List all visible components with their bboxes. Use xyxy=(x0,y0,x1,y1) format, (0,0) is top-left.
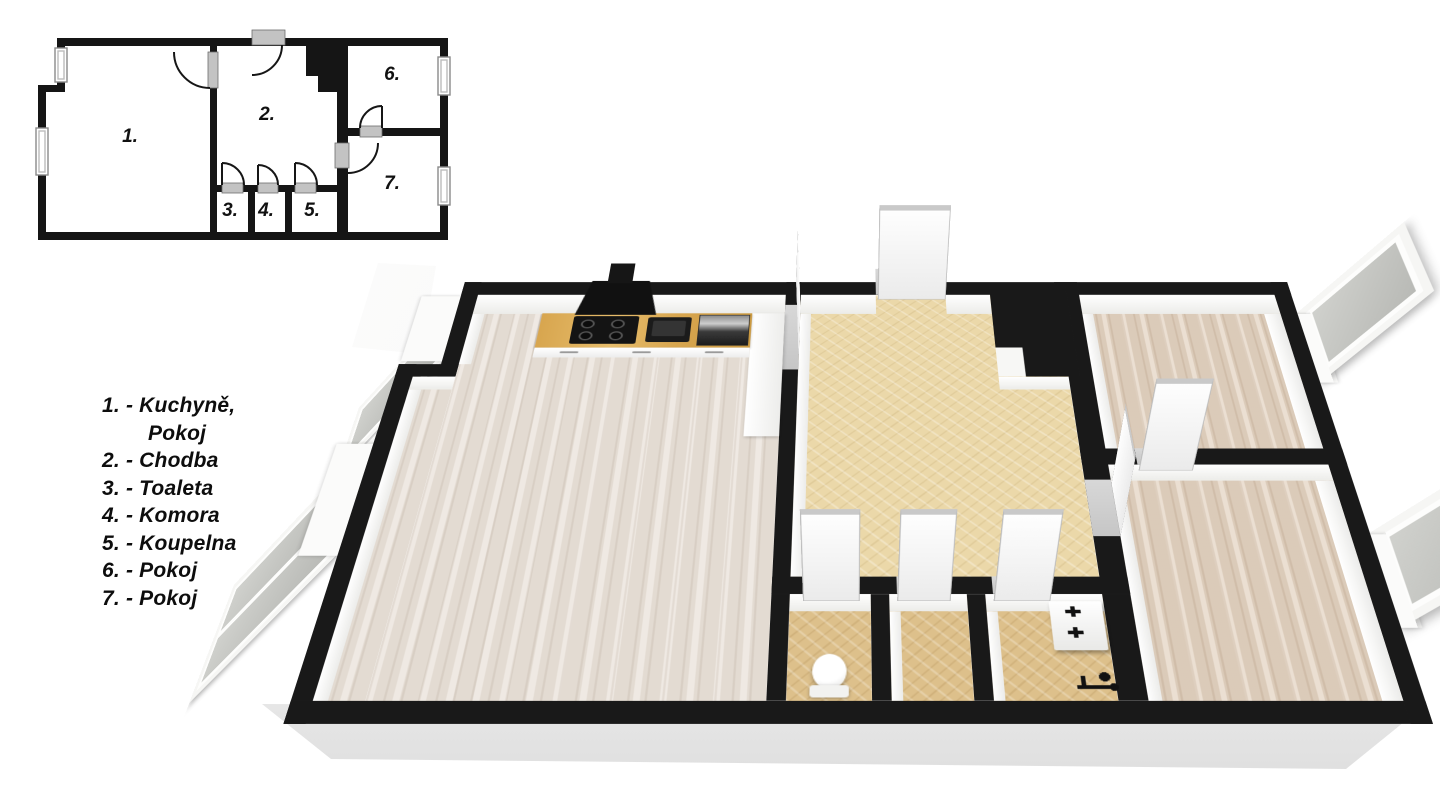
legend-item: 6. - Pokoj xyxy=(102,557,236,585)
wall-face xyxy=(1079,295,1280,314)
room-label-4: 4. xyxy=(257,200,274,221)
oven xyxy=(696,315,750,346)
room-label-3: 3. xyxy=(222,200,238,221)
legend: 1. - Kuchyně, Pokoj 2. - Chodba 3. - Toa… xyxy=(102,392,236,612)
entrance-threshold-2d xyxy=(252,30,285,45)
wall-wc-storage xyxy=(871,594,892,701)
room-label-1: 1. xyxy=(122,126,138,147)
wall-south xyxy=(283,701,1433,724)
wall-face xyxy=(945,295,992,314)
door-storage xyxy=(897,509,958,601)
chimney-notch-2d xyxy=(306,76,318,92)
legend-item: 1. - Kuchyně, xyxy=(102,392,236,420)
window-icon xyxy=(438,57,450,95)
bathroom-vanity xyxy=(1049,601,1109,650)
chimney-notch xyxy=(996,348,1026,377)
room-label-7: 7. xyxy=(384,173,400,194)
legend-item: 7. - Pokoj xyxy=(102,585,236,613)
toilet xyxy=(812,654,847,689)
legend-item: 5. - Koupelna xyxy=(102,530,236,558)
entrance-door xyxy=(878,205,951,300)
hood-vent xyxy=(608,264,636,284)
floorplan-2d: 1. 2. 3. 4. 5. 6. 7. xyxy=(30,28,452,243)
window-icon xyxy=(438,167,450,205)
chimney-shaft xyxy=(989,285,1080,376)
floorplan-3d xyxy=(261,261,1439,724)
window-icon xyxy=(36,128,48,175)
window-bedroom-6 xyxy=(1297,222,1434,383)
legend-item-continuation: Pokoj xyxy=(102,420,236,448)
bathroom-fixture xyxy=(1073,670,1123,698)
window-icon xyxy=(55,48,67,82)
kitchen-cabinet-front xyxy=(532,348,749,358)
door-toilet xyxy=(800,509,861,601)
room-label-5: 5. xyxy=(304,200,320,221)
kitchen-sink xyxy=(645,317,692,342)
toilet-tank xyxy=(809,685,848,697)
wall-face xyxy=(890,611,904,701)
legend-item: 4. - Komora xyxy=(102,502,236,530)
floor-plan-page: 1. 2. 3. 4. 5. 6. 7. 1. - Kuchyně, Pokoj… xyxy=(0,0,1440,810)
cooktop xyxy=(569,316,640,344)
room-label-2: 2. xyxy=(258,104,275,125)
legend-item: 3. - Toaleta xyxy=(102,475,236,503)
room-label-6: 6. xyxy=(384,64,400,85)
wall-face xyxy=(409,377,456,390)
wall-face xyxy=(800,295,876,314)
door-arcs-2d xyxy=(174,45,382,185)
legend-item: 2. - Chodba xyxy=(102,447,236,475)
